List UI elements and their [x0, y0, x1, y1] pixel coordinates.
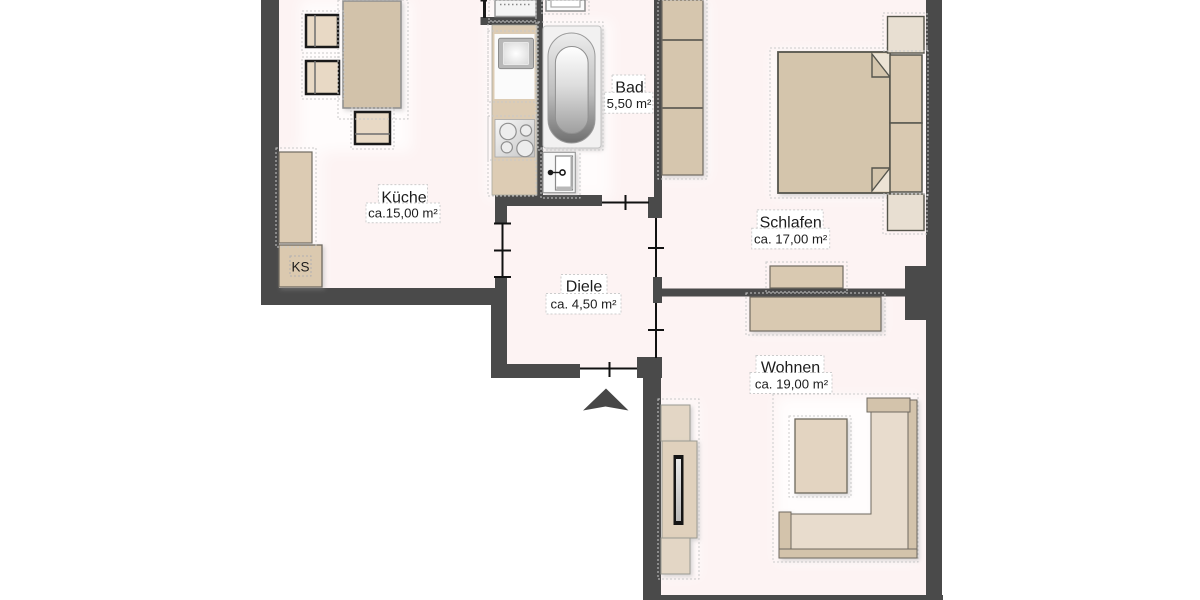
- svg-text:Schlafen: Schlafen: [760, 214, 822, 231]
- svg-text:ca. 17,00 m²: ca. 17,00 m²: [754, 232, 828, 247]
- svg-text:Wohnen: Wohnen: [761, 359, 820, 376]
- svg-text:Diele: Diele: [566, 279, 603, 296]
- svg-text:ca.15,00 m²: ca.15,00 m²: [368, 205, 438, 220]
- svg-text:KS: KS: [291, 260, 309, 275]
- svg-text:ca. 19,00 m²: ca. 19,00 m²: [755, 377, 829, 392]
- svg-text:ca. 4,50 m²: ca. 4,50 m²: [551, 296, 618, 311]
- svg-text:5,50 m²: 5,50 m²: [607, 96, 652, 111]
- svg-text:Bad: Bad: [615, 79, 643, 96]
- svg-text:Küche: Küche: [381, 189, 426, 206]
